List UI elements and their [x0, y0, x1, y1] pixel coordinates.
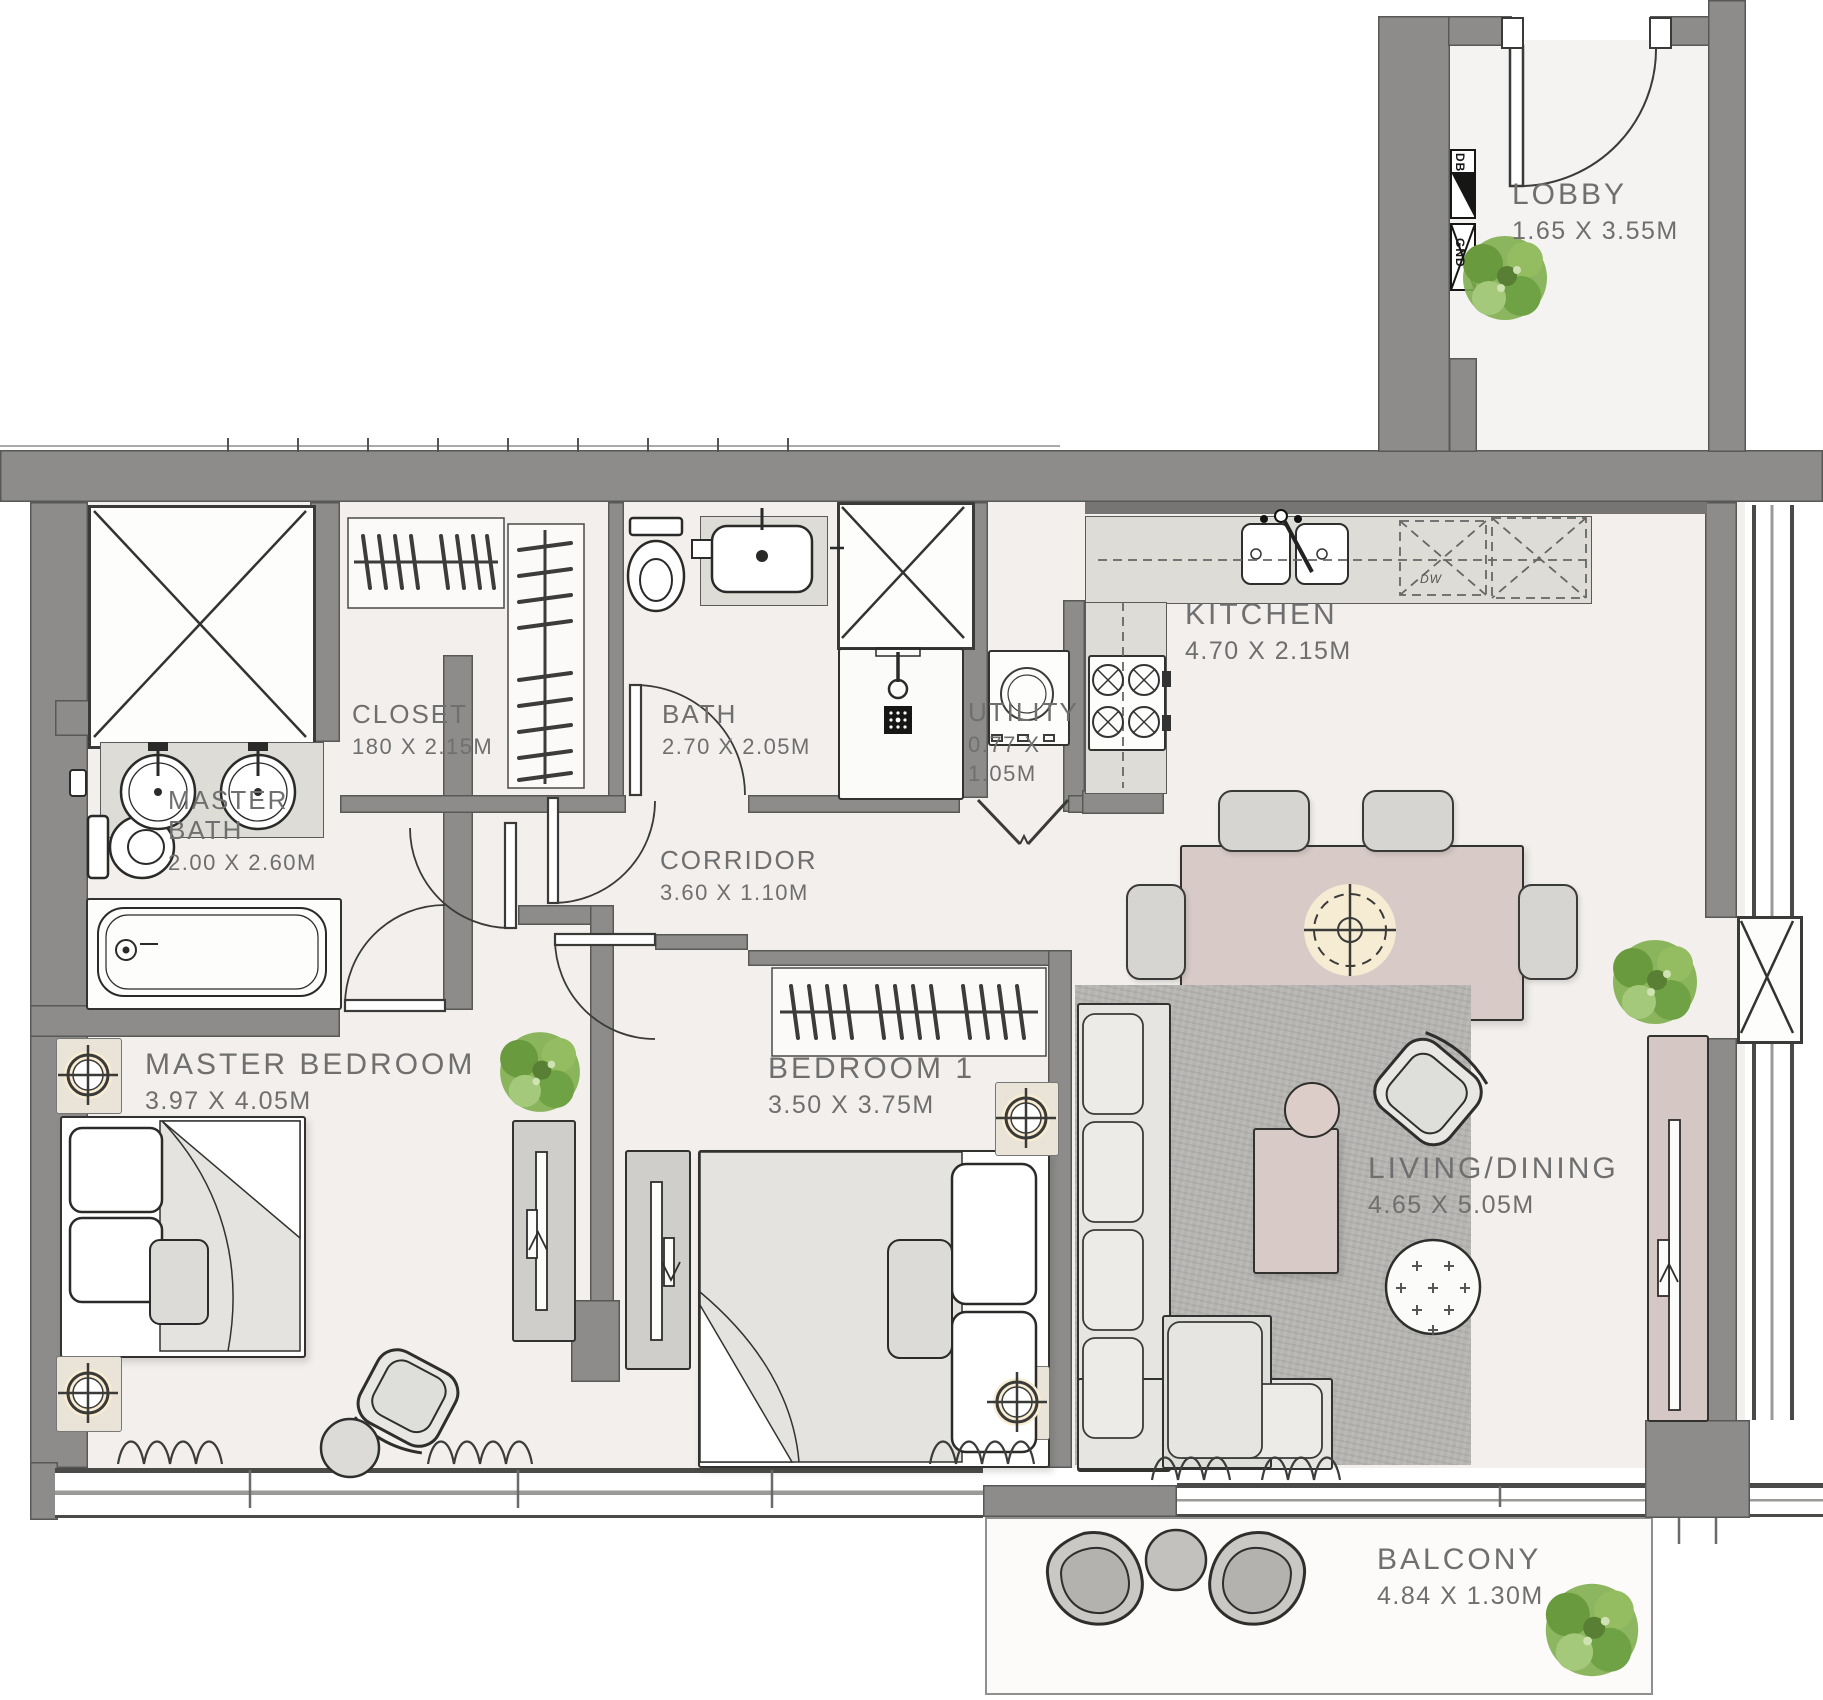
dresser-master — [512, 1120, 576, 1342]
bath-name: BATH — [662, 700, 811, 730]
lobby-label: LOBBY 1.65 X 3.55M — [1512, 178, 1679, 245]
bedroom1-label: BEDROOM 1 3.50 X 3.75M — [768, 1052, 975, 1119]
window-far-right — [1750, 1483, 1823, 1517]
wall-partition-foot — [571, 1300, 620, 1382]
wall-rack-top — [748, 950, 1066, 966]
gnd-tag: GND — [1453, 238, 1467, 268]
dining-chair-2 — [1362, 790, 1454, 852]
window-right-lower — [1752, 1042, 1794, 1420]
coffee-table — [1253, 1128, 1339, 1274]
living-dining-dims: 4.65 X 5.05M — [1368, 1191, 1619, 1220]
dresser-bedroom1 — [625, 1150, 691, 1370]
lobby-dims: 1.65 X 3.55M — [1512, 217, 1679, 246]
utility-dims-1: 0.77 X — [968, 732, 1079, 757]
bath-sink-counter — [700, 516, 828, 606]
corridor-name: CORRIDOR — [660, 846, 818, 876]
master-bath-dims: 2.00 X 2.60M — [168, 850, 317, 875]
utility-name: UTILITY — [968, 698, 1079, 728]
living-dining-name: LIVING/DINING — [1368, 1152, 1619, 1187]
master-bed — [60, 1116, 306, 1358]
master-bedroom-label: MASTER BEDROOM 3.97 X 4.05M — [145, 1048, 475, 1115]
nightstand-light-4 — [986, 1366, 1050, 1440]
balcony-name: BALCONY — [1377, 1543, 1544, 1578]
wall-kitchen-topline — [1085, 502, 1707, 514]
window-living — [1177, 1483, 1645, 1517]
wall-bedroom1-top — [655, 934, 748, 950]
wall-balcony-pier — [983, 1485, 1177, 1517]
dining-chair-6 — [1518, 884, 1578, 980]
shower — [838, 648, 964, 800]
tv-console — [1647, 1035, 1709, 1422]
dining-chair-1 — [1218, 790, 1310, 852]
kitchen-dims: 4.70 X 2.15M — [1185, 637, 1352, 666]
closet-name: CLOSET — [352, 700, 493, 730]
dw-tag: DW — [1420, 572, 1442, 586]
wall-right-top — [1708, 0, 1746, 452]
nightstand-light-3 — [995, 1082, 1059, 1156]
wall-lobby-column — [1378, 16, 1450, 452]
balcony-floor — [985, 1517, 1653, 1695]
master-bedroom-dims: 3.97 X 4.05M — [145, 1087, 475, 1116]
closet-label: CLOSET 180 X 2.15M — [352, 700, 493, 759]
master-bath-label: MASTER BATH 2.00 X 2.60M — [168, 786, 317, 875]
corridor-dims: 3.60 X 1.10M — [660, 880, 818, 905]
balcony-dims: 4.84 X 1.30M — [1377, 1582, 1544, 1611]
stove — [1088, 655, 1166, 751]
wall-bath-left — [608, 502, 624, 797]
wall-entry-left — [1448, 16, 1512, 46]
lobby-name: LOBBY — [1512, 178, 1679, 213]
master-bedroom-name: MASTER BEDROOM — [145, 1048, 475, 1083]
lobby-floor — [1448, 40, 1708, 452]
shaft-box-left — [88, 505, 316, 749]
window-right-upper — [1752, 505, 1794, 917]
db-tag: DB — [1453, 153, 1467, 172]
kitchen-counter-top — [1085, 516, 1592, 604]
closet-dims: 180 X 2.15M — [352, 734, 493, 759]
balcony-label: BALCONY 4.84 X 1.30M — [1377, 1543, 1544, 1610]
bedroom1-dims: 3.50 X 3.75M — [768, 1091, 975, 1120]
wall-corner-pier — [1645, 1420, 1750, 1518]
bathtub — [86, 898, 342, 1010]
wall-left-foot — [30, 1462, 58, 1520]
utility-dims-2: 1.05M — [968, 761, 1079, 786]
master-bath-name-2: BATH — [168, 816, 317, 846]
corridor-label: CORRIDOR 3.60 X 1.10M — [660, 846, 818, 905]
sofa-chaise — [1162, 1315, 1272, 1469]
living-dining-label: LIVING/DINING 4.65 X 5.05M — [1368, 1152, 1619, 1219]
wall-entry-right — [1650, 16, 1710, 46]
nightstand-light-1 — [56, 1038, 122, 1114]
wall-right-mid — [1705, 502, 1737, 918]
utility-label: UTILITY 0.77 X 1.05M — [968, 698, 1079, 786]
kitchen-label: KITCHEN 4.70 X 2.15M — [1185, 598, 1352, 665]
bath-label: BATH 2.70 X 2.05M — [662, 700, 811, 759]
wall-bedroom1-right — [1048, 950, 1072, 1468]
floor-plan: LOBBY 1.65 X 3.55M KITCHEN 4.70 X 2.15M … — [0, 0, 1823, 1700]
wall-lobby-strip-low — [1449, 358, 1477, 452]
master-bath-name-1: MASTER — [168, 786, 317, 816]
bath-dims: 2.70 X 2.05M — [662, 734, 811, 759]
wall-corridor-a — [340, 795, 626, 813]
kitchen-name: KITCHEN — [1185, 598, 1352, 633]
bedroom1-name: BEDROOM 1 — [768, 1052, 975, 1087]
wall-right-low — [1705, 1038, 1737, 1422]
window-bedrooms — [55, 1468, 983, 1518]
wall-partition — [590, 905, 614, 1305]
shaft-box-right — [1737, 916, 1803, 1044]
dining-chair-5 — [1126, 884, 1186, 980]
wall-top-band — [0, 450, 1823, 502]
shaft-box-bath — [837, 502, 975, 650]
nightstand-light-2 — [56, 1356, 122, 1432]
